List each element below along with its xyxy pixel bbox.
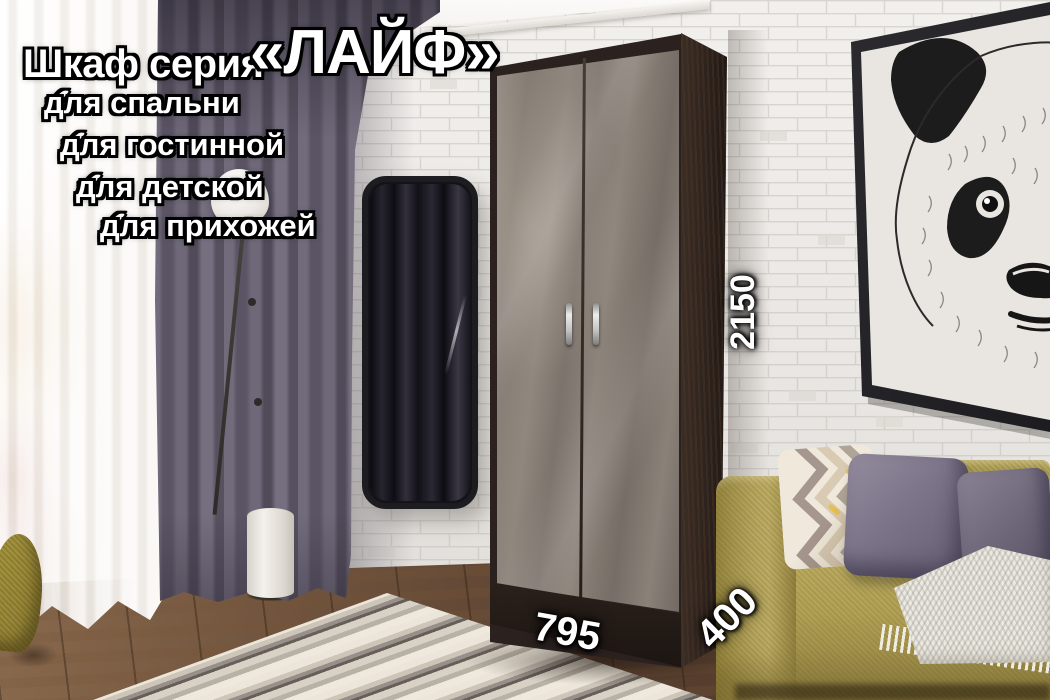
wall-mirror (362, 176, 478, 509)
product-series-name: «ЛАЙФ» (250, 22, 499, 84)
sofa-under-shadow (735, 684, 1050, 700)
wardrobe-doors (497, 42, 681, 620)
dimension-height-label: 2150 (726, 256, 766, 368)
room-scene: Шкаф серия «ЛАЙФ» ✔ для спальни ✔ для го… (0, 0, 1050, 700)
product-title-prefix: Шкаф серия (23, 44, 263, 84)
lamp-base (247, 508, 294, 598)
feature-label: для прихожей (100, 210, 316, 241)
feature-label: для спальни (44, 87, 240, 118)
lamp-joint (254, 398, 262, 406)
panda-poster (845, 0, 1050, 450)
door-handle-right (593, 303, 599, 345)
door-handle-left (566, 303, 572, 345)
pillow-purple-left (843, 453, 969, 581)
feature-label: для детской (76, 171, 264, 202)
lamp-joint (248, 298, 256, 306)
panda-illustration (853, 8, 1050, 428)
feature-label: для гостинной (60, 129, 284, 160)
